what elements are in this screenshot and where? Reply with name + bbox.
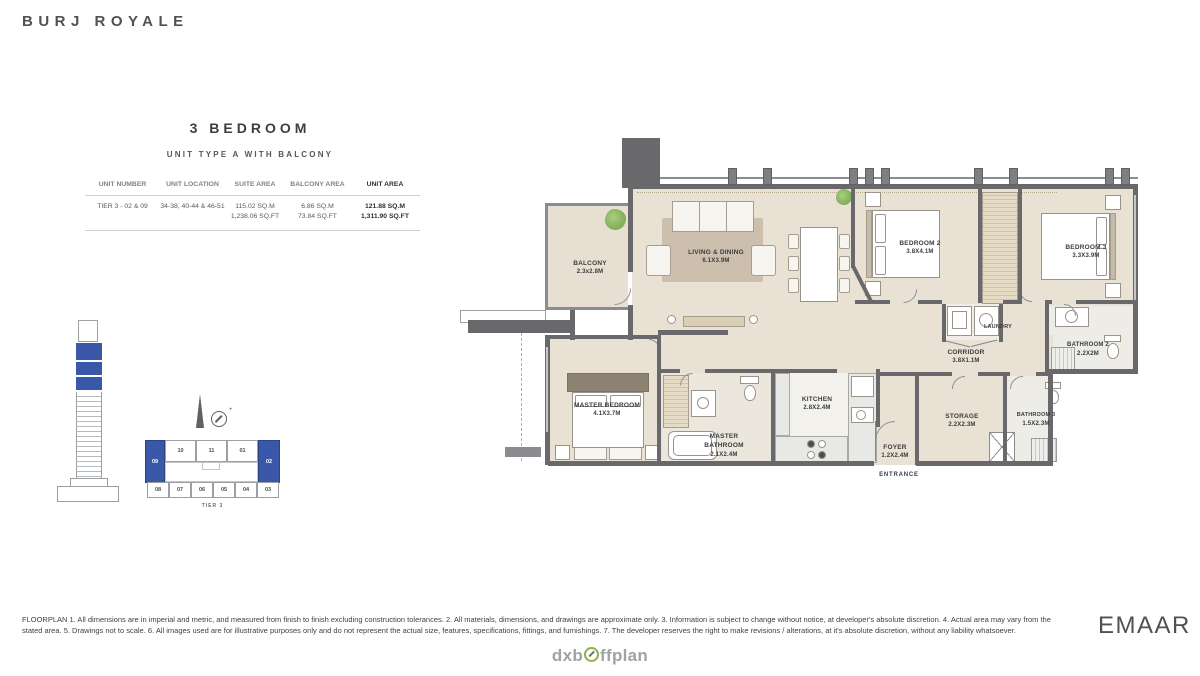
window-mullion (849, 168, 858, 185)
dining-chair (788, 234, 799, 249)
tower-highlight-band (76, 362, 102, 375)
compass-north-mark: + (229, 407, 233, 413)
tier-label: TIER 3 (145, 503, 280, 509)
room-label-entrance: ENTRANCE (864, 471, 934, 480)
tower-highlight-band (76, 377, 102, 390)
wall-segment (545, 203, 548, 310)
dining-table (800, 227, 838, 302)
shaft-box (989, 432, 1015, 462)
sink-basin (697, 397, 709, 409)
room-label-master-bedroom: MASTER BEDROOM 4.1X3.7M (572, 401, 642, 419)
unit-subheading: UNIT TYPE A WITH BALCONY (95, 150, 405, 159)
boundary-line (521, 333, 522, 461)
tower-floors (76, 392, 102, 478)
room-label-balcony: BALCONY 2.3x2.8M (555, 259, 625, 277)
ledge-wall (468, 320, 572, 333)
wall-segment (775, 369, 837, 373)
sofa (672, 201, 754, 232)
wall-segment (548, 461, 874, 466)
window-mullion (974, 168, 983, 185)
wall-segment (1003, 300, 1022, 304)
dining-chair (788, 278, 799, 293)
keyplan-unit-01: 01 (227, 440, 258, 462)
keyplan-core (202, 462, 220, 470)
dining-chair (839, 234, 850, 249)
wall-segment (942, 304, 946, 342)
unit-heading: 3 BEDROOM (95, 120, 405, 136)
page-title: BURJ ROYALE (22, 13, 189, 30)
wall-segment (705, 369, 775, 373)
sink-basin (856, 410, 866, 420)
cell-unit-number: TIER 3 - 02 & 09 (85, 202, 160, 222)
stove-burner (818, 440, 826, 448)
wall-segment (1048, 369, 1138, 374)
wall-segment (628, 185, 633, 272)
tower-silhouette (55, 318, 121, 504)
keyplan-unit-08: 08 (147, 482, 169, 498)
nightstand (555, 445, 570, 460)
window-mullion (763, 168, 772, 185)
window-mullion (1121, 168, 1130, 185)
unit-table-header: UNIT NUMBER UNIT LOCATION SUITE AREA BAL… (85, 180, 420, 196)
tier-keyplan: 09 02 10 11 01 08 07 06 05 04 03 TIER 3 (145, 437, 280, 513)
keyplan-unit-10: 10 (165, 440, 196, 462)
window-mullion (728, 168, 737, 185)
north-compass-icon (211, 411, 227, 427)
window-strip (1134, 195, 1136, 300)
wall-segment (1076, 300, 1138, 304)
stove-burner (807, 451, 815, 459)
magnifier-icon (584, 647, 599, 662)
wall-segment (851, 188, 855, 268)
wall-segment (771, 369, 775, 465)
armchair (751, 245, 776, 276)
wall-segment (918, 300, 942, 304)
dining-chair (839, 256, 850, 271)
col-unit-location: UNIT LOCATION (160, 180, 225, 190)
wall-segment (1036, 372, 1048, 376)
room-label-corridor: CORRIDOR 3.8X1.1M (931, 348, 1001, 366)
room-label-bathroom3: BATHROOM 3 1.5X2.3M (1001, 412, 1071, 429)
tower-base (57, 486, 119, 502)
nightstand (1105, 195, 1121, 210)
room-label-master-bathroom: MASTER BATHROOM 2.1X2.4M (693, 432, 755, 460)
floorplan: BALCONY 2.3x2.8M LIVING & DINING 6.1X3.9… (455, 135, 1145, 490)
dining-chair (788, 256, 799, 271)
col-suite-area: SUITE AREA (225, 180, 285, 190)
disclaimer-text: FLOORPLAN 1. All dimensions are in imper… (22, 615, 1062, 636)
window-mullion (865, 168, 874, 185)
stove-burner (818, 451, 826, 459)
wall-segment (999, 304, 1003, 342)
bed-headboard-wall (567, 373, 649, 392)
keyplan-unit-02-highlight: 02 (258, 440, 280, 483)
room-label-bathroom2: BATHROOM 2 2.2X2M (1053, 341, 1123, 358)
tower-cap (78, 320, 98, 342)
wall-segment (876, 369, 880, 427)
toilet-tank (740, 376, 759, 384)
watermark-dxboffplan: dxbffplan (0, 646, 1200, 666)
window-mullion (1105, 168, 1114, 185)
ledge-stub (505, 447, 541, 457)
room-label-laundry: LAUNDRY (968, 324, 1028, 332)
col-unit-area: UNIT AREA (350, 180, 420, 190)
tower-highlight-band (76, 343, 102, 360)
nightstand (865, 192, 881, 207)
room-label-foyer: FOYER 1.2X2.4M (860, 443, 930, 461)
keyplan-unit-06: 06 (191, 482, 213, 498)
table-row: TIER 3 - 02 & 09 34-38, 40-44 & 46-51 11… (85, 196, 420, 230)
nightstand (1105, 283, 1121, 298)
room-label-bedroom2: BEDROOM 2 3.8X4.1M (885, 239, 955, 257)
wall-segment (548, 335, 660, 339)
keyplan-unit-05: 05 (213, 482, 235, 498)
wall-segment (1018, 188, 1022, 303)
armchair (646, 245, 671, 276)
cell-unit-location: 34-38, 40-44 & 46-51 (160, 202, 225, 222)
wall-segment (545, 203, 630, 206)
window-mullion (881, 168, 890, 185)
toilet (744, 385, 756, 401)
wall-segment (658, 330, 728, 335)
cell-suite-area: 115.02 SQ.M 1,238.06 SQ.FT (225, 202, 285, 222)
keyplan-unit-09-highlight: 09 (145, 440, 165, 483)
floor-lamp (749, 315, 758, 324)
wall-segment (978, 188, 982, 303)
fridge (851, 376, 874, 397)
room-label-living-dining: LIVING & DINING 6.1X3.9M (681, 248, 751, 266)
cell-balcony-area: 6.86 SQ.M 73.84 SQ.FT (285, 202, 350, 222)
window-mullion (1009, 168, 1018, 185)
unit-table: UNIT NUMBER UNIT LOCATION SUITE AREA BAL… (85, 180, 420, 231)
cell-unit-area: 121.88 SQ.M 1,311.90 SQ.FT (350, 202, 420, 222)
room-label-bedroom3: BEDROOM 3 3.3X3.9M (1051, 243, 1121, 261)
keyplan-unit-07: 07 (169, 482, 191, 498)
shower (1031, 438, 1057, 462)
dining-chair (839, 278, 850, 293)
pillow (1096, 217, 1107, 245)
service-shaft (622, 138, 660, 188)
wall-segment (916, 461, 1053, 466)
wall-segment (1045, 300, 1049, 376)
col-balcony-area: BALCONY AREA (285, 180, 350, 190)
tv-console (683, 316, 745, 327)
floor-lamp (667, 315, 676, 324)
keyplan-unit-04: 04 (235, 482, 257, 498)
wall-segment (661, 369, 680, 373)
wall-segment (545, 307, 630, 310)
spire-icon (196, 394, 204, 428)
keyplan-unit-03: 03 (257, 482, 279, 498)
wall-segment (657, 335, 661, 465)
compass-needle (215, 415, 222, 422)
room-label-storage: STORAGE 2.2X2.3M (927, 412, 997, 430)
developer-logo: EMAAR (1098, 612, 1188, 640)
col-unit-number: UNIT NUMBER (85, 180, 160, 190)
stove-burner (807, 440, 815, 448)
keyplan-unit-11: 11 (196, 440, 227, 462)
window-strip (546, 347, 548, 432)
room-label-kitchen: KITCHEN 2.8X2.4M (787, 395, 847, 413)
washer-door (952, 311, 967, 329)
wardrobe (982, 192, 1018, 304)
wall-segment (855, 300, 890, 304)
